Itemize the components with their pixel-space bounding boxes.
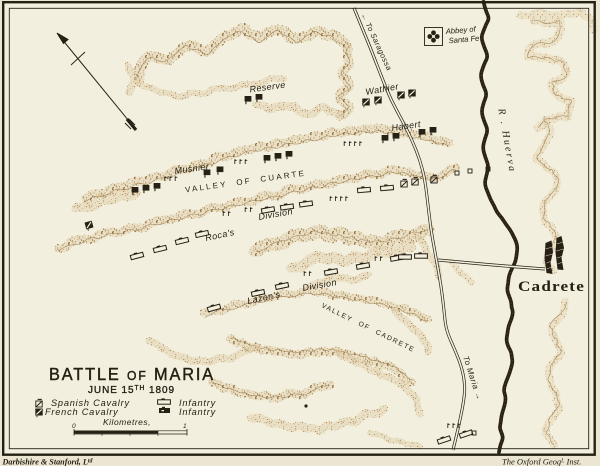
svg-text:JUNE 15TH 1809: JUNE 15TH 1809 (88, 384, 175, 396)
svg-text:French Cavalry: French Cavalry (45, 407, 119, 417)
svg-text:Kilometres,: Kilometres, (103, 417, 151, 427)
svg-text:The Oxford Geogl. Inst.: The Oxford Geogl. Inst. (502, 457, 581, 466)
svg-text:Darbishire & Stanford, Ltd: Darbishire & Stanford, Ltd (1, 458, 92, 466)
svg-text:1: 1 (183, 423, 187, 430)
svg-text:Infantry: Infantry (179, 407, 217, 417)
svg-text:Cadrete: Cadrete (518, 279, 585, 295)
svg-text:0: 0 (72, 423, 76, 430)
